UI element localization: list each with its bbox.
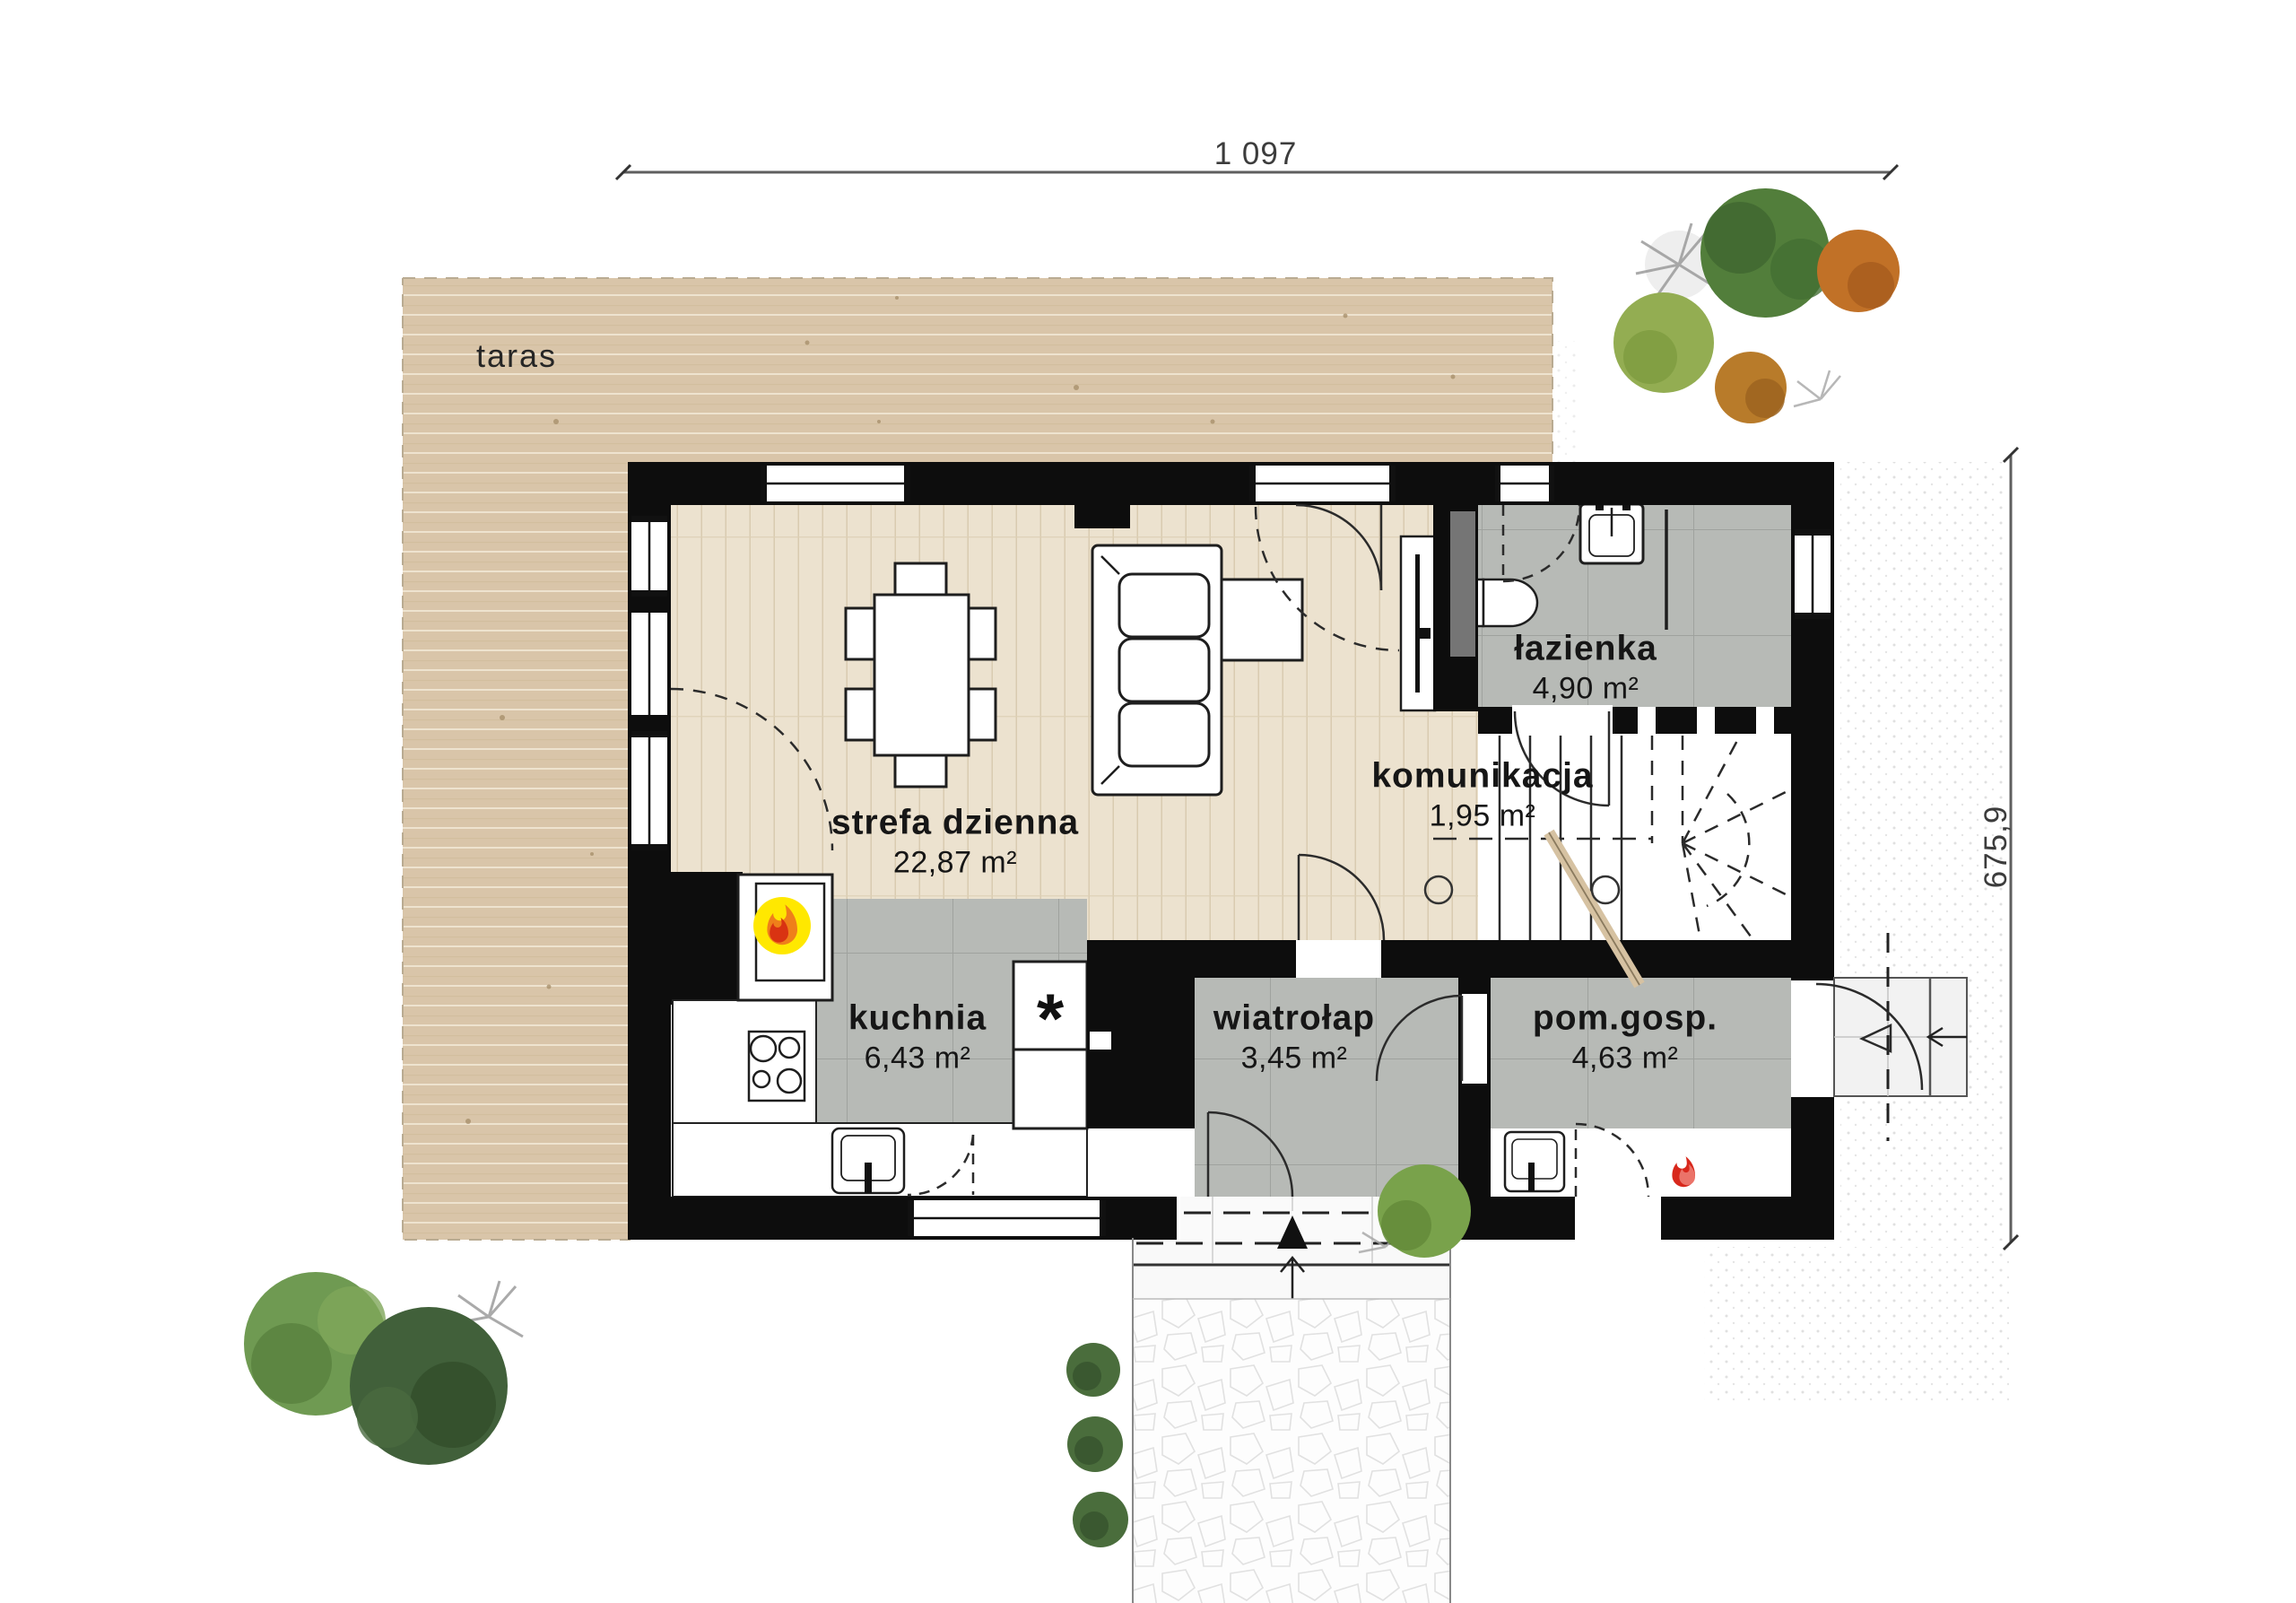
room-label-strefa-dzienna: strefa dzienna 22,87 m²	[831, 801, 1079, 881]
room-name: strefa dzienna	[831, 801, 1079, 844]
room-label-lazienka: łazienka 4,90 m²	[1514, 627, 1657, 707]
room-name: komunikacja	[1371, 754, 1593, 797]
room-label-kuchnia: kuchnia 6,43 m²	[848, 997, 987, 1076]
room-area: 3,45 m²	[1213, 1040, 1375, 1076]
dimension-label-right: 675,9	[1979, 806, 2014, 889]
room-label-taras: taras	[476, 337, 557, 375]
room-area: 1,95 m²	[1371, 797, 1593, 834]
room-label-wiatrolap: wiatrołap 3,45 m²	[1213, 997, 1375, 1076]
labels-layer: taras strefa dzienna 22,87 m² łazienka 4…	[0, 0, 2296, 1603]
room-area: 6,43 m²	[848, 1040, 987, 1076]
room-area: 4,63 m²	[1533, 1040, 1718, 1076]
room-name: wiatrołap	[1213, 997, 1375, 1040]
room-area: 22,87 m²	[831, 844, 1079, 881]
room-name: łazienka	[1514, 627, 1657, 670]
fridge-symbol: *	[1037, 983, 1064, 1053]
room-name: taras	[476, 337, 557, 374]
room-name: pom.gosp.	[1533, 997, 1718, 1040]
room-area: 4,90 m²	[1514, 670, 1657, 707]
room-label-komunikacja: komunikacja 1,95 m²	[1371, 754, 1593, 834]
dimension-label-top: 1 097	[1214, 136, 1298, 172]
room-label-pom-gosp: pom.gosp. 4,63 m²	[1533, 997, 1718, 1076]
room-name: kuchnia	[848, 997, 987, 1040]
floor-plan: taras strefa dzienna 22,87 m² łazienka 4…	[0, 0, 2296, 1603]
